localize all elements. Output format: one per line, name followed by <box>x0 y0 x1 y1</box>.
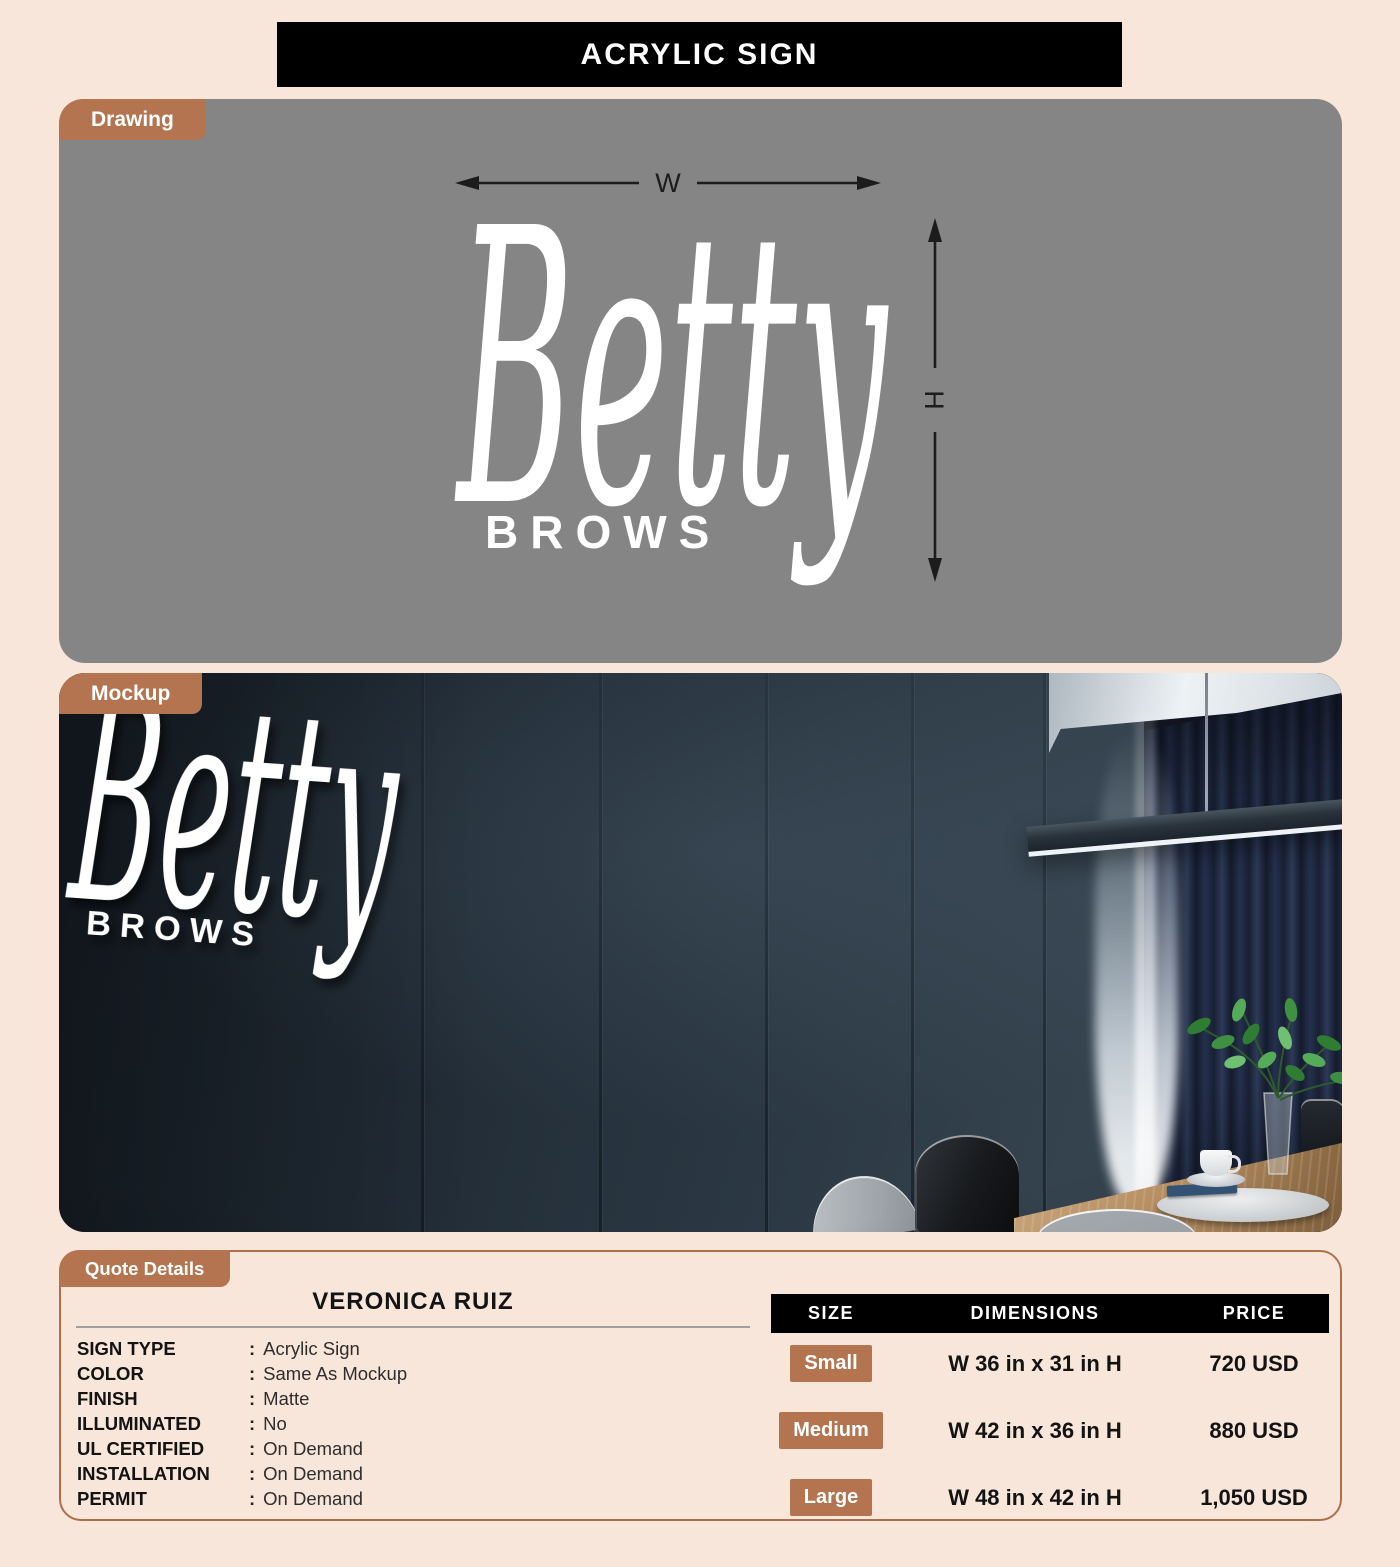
mockup-tab: Mockup <box>59 673 202 714</box>
logo-caps-text: BROWS <box>485 506 721 558</box>
drawing-tab-label: Drawing <box>91 108 174 132</box>
price-large: 1,050 USD <box>1179 1485 1329 1511</box>
header-size: SIZE <box>771 1303 891 1324</box>
field-installation: INSTALLATION : On Demand <box>77 1461 751 1486</box>
quote-details-section: Quote Details VERONICA RUIZ SIGN TYPE : … <box>59 1250 1342 1521</box>
table-row-small: Small W 36 in x 31 in H 720 USD <box>771 1330 1329 1397</box>
drawing-section: Drawing W H Betty BROWS <box>59 99 1342 663</box>
dimensions-small: W 36 in x 31 in H <box>891 1351 1179 1377</box>
photo-vignette <box>59 673 1342 1232</box>
price-small: 720 USD <box>1179 1351 1329 1377</box>
title-banner: ACRYLIC SIGN <box>277 22 1122 87</box>
price-medium: 880 USD <box>1179 1418 1329 1444</box>
betty-brows-logo-drawing: Betty BROWS <box>449 211 949 661</box>
dimensions-large: W 48 in x 42 in H <box>891 1485 1179 1511</box>
field-finish: FINISH : Matte <box>77 1386 751 1411</box>
field-sign-type: SIGN TYPE : Acrylic Sign <box>77 1336 751 1361</box>
field-color: COLOR : Same As Mockup <box>77 1361 751 1386</box>
price-table-rows: Small W 36 in x 31 in H 720 USD Medium W… <box>771 1330 1329 1531</box>
price-table: SIZE DIMENSIONS PRICE Small W 36 in x 31… <box>771 1294 1329 1531</box>
dimensions-medium: W 42 in x 36 in H <box>891 1418 1179 1444</box>
drawing-tab: Drawing <box>59 99 206 140</box>
mockup-photo: Betty BROWS <box>59 673 559 1128</box>
size-badge-small: Small <box>790 1345 871 1382</box>
table-row-large: Large W 48 in x 42 in H 1,050 USD <box>771 1464 1329 1531</box>
quote-fields: SIGN TYPE : Acrylic Sign COLOR : Same As… <box>77 1336 751 1511</box>
price-table-header: SIZE DIMENSIONS PRICE <box>771 1294 1329 1333</box>
size-badge-large: Large <box>790 1479 872 1516</box>
mockup-section: Mockup Betty BROWS <box>59 673 1342 1232</box>
header-dimensions: DIMENSIONS <box>891 1303 1179 1324</box>
field-ul-certified: UL CERTIFIED : On Demand <box>77 1436 751 1461</box>
quote-details-tab-label: Quote Details <box>85 1258 204 1280</box>
field-permit: PERMIT : On Demand <box>77 1486 751 1511</box>
mockup-tab-label: Mockup <box>91 682 170 706</box>
customer-name: VERONICA RUIZ <box>76 1288 750 1316</box>
quote-details-tab: Quote Details <box>59 1250 230 1287</box>
size-badge-medium: Medium <box>779 1412 883 1449</box>
table-row-medium: Medium W 42 in x 36 in H 880 USD <box>771 1397 1329 1464</box>
customer-name-divider <box>76 1326 750 1328</box>
header-price: PRICE <box>1179 1303 1329 1324</box>
field-illuminated: ILLUMINATED : No <box>77 1411 751 1436</box>
page-title: ACRYLIC SIGN <box>581 38 819 72</box>
